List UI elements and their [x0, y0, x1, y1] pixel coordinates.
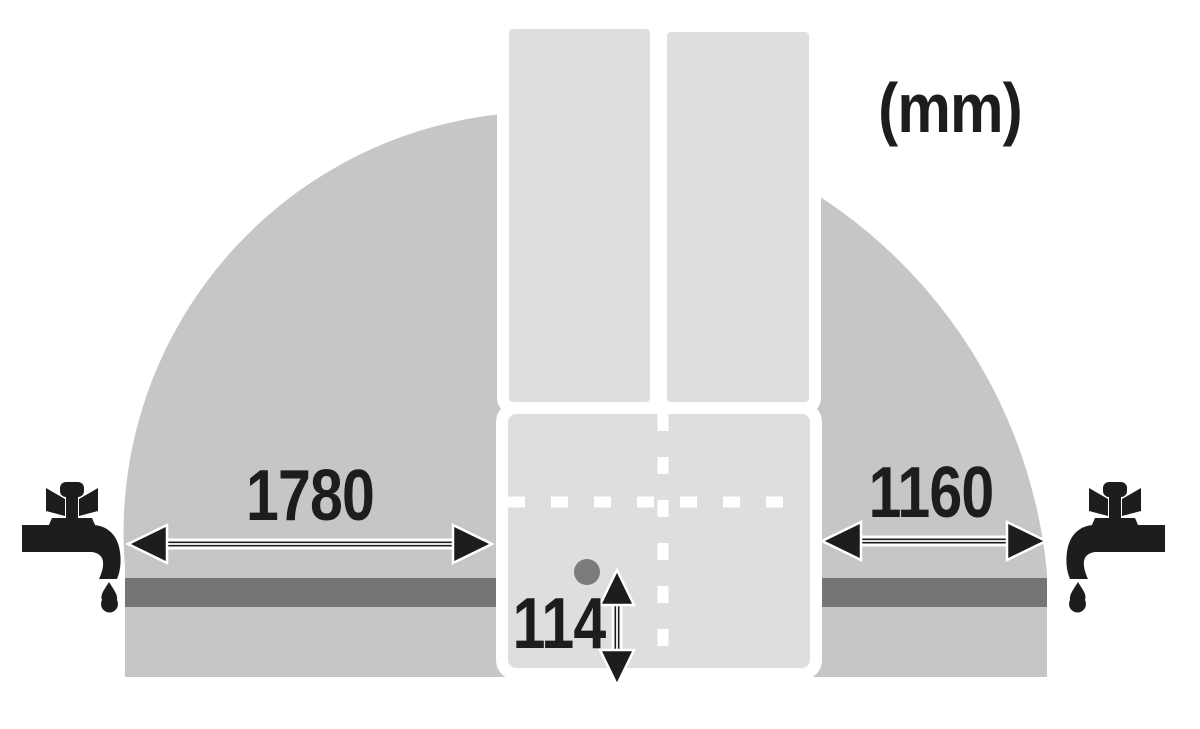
unit-label: (mm) — [878, 73, 1022, 143]
installation-diagram: 1780 1160 114 (mm) — [0, 0, 1200, 729]
faucet-icon — [22, 482, 121, 613]
dimension-label-right-clearance: 1160 — [869, 457, 994, 529]
right-door-panel — [661, 26, 815, 408]
water-connection-dot — [574, 559, 600, 585]
dimension-label-left-clearance: 1780 — [246, 460, 374, 532]
left-door-panel — [503, 23, 656, 408]
faucet-icon — [1066, 482, 1165, 613]
dimension-label-water-offset: 114 — [513, 588, 606, 660]
